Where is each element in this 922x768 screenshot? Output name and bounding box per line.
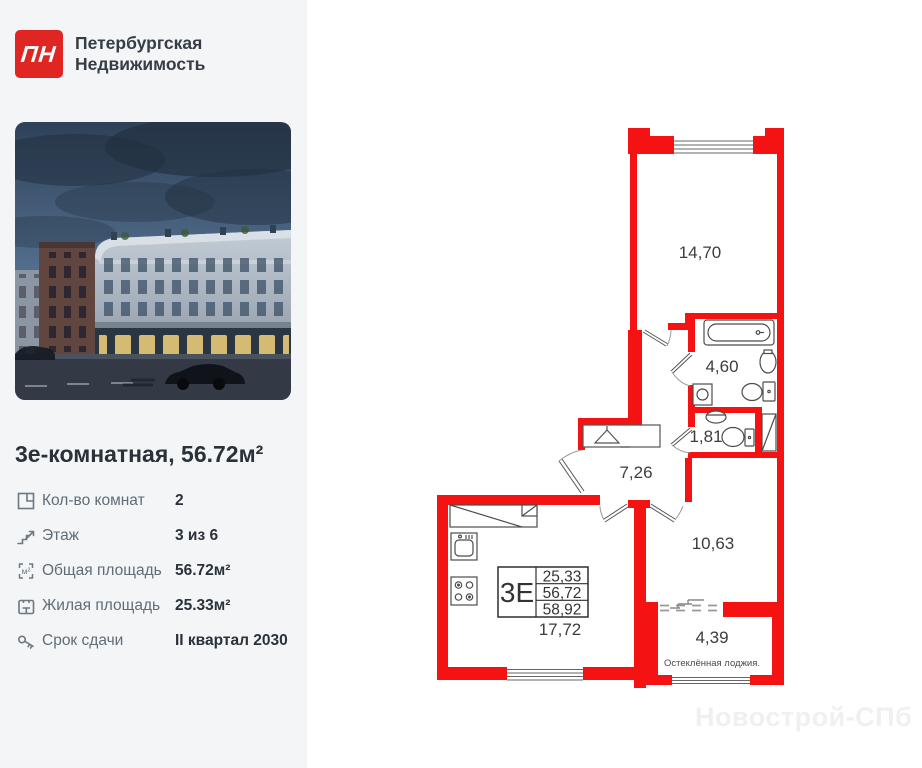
room-label-wc: 1,81 — [689, 427, 722, 446]
unit-living-area: 25,33 — [543, 569, 582, 586]
radiator-icon — [670, 600, 704, 608]
key-icon — [15, 630, 37, 652]
building-photo-art — [15, 122, 291, 400]
walls — [437, 128, 784, 688]
sidebar: ПН Петербургская Недвижимость — [0, 0, 307, 768]
rooms-icon — [15, 490, 37, 512]
watermark: Новострой-СПб — [695, 702, 920, 733]
detail-value: 56.72м² — [175, 562, 230, 580]
detail-label: Кол-во комнат — [42, 492, 145, 510]
kitchen-sink-icon — [451, 533, 477, 560]
brand-name: Петербургская Недвижимость — [75, 33, 205, 75]
room-label-hallway: 7,26 — [619, 463, 652, 482]
room-label-living-room: 14,70 — [679, 243, 722, 262]
bathtub-icon — [704, 320, 774, 345]
detail-row-rooms: Кол-во комнат 2 — [15, 490, 295, 512]
window-kitchen — [507, 670, 583, 681]
bed-icon — [450, 505, 537, 527]
shaft-icon — [762, 414, 776, 451]
detail-value: 3 из 6 — [175, 527, 218, 545]
detail-value: II квартал 2030 — [175, 632, 288, 650]
floor-plan: 14,70 4,60 1,81 7,26 10,63 17,72 4,39 Ос… — [430, 120, 922, 700]
unit-area-with-loggia: 58,92 — [543, 602, 582, 619]
loggia-dashes — [660, 606, 723, 611]
bath-sink-icon — [760, 350, 776, 373]
detail-label: Жилая площадь — [42, 597, 160, 615]
brand-line1: Петербургская — [75, 33, 205, 54]
detail-row-completion: Срок сдачи II квартал 2030 — [15, 630, 295, 652]
wc-toilet-icon — [722, 428, 754, 447]
room-label-bedroom: 10,63 — [692, 534, 735, 553]
loggia-note: Остеклённая лоджия. — [664, 658, 760, 669]
room-label-kitchen-living: 17,72 — [539, 620, 582, 639]
detail-value: 25.33м² — [175, 597, 230, 615]
window-loggia — [672, 678, 750, 684]
detail-label: Срок сдачи — [42, 632, 123, 650]
door-kitchen — [600, 504, 628, 522]
detail-row-living-area: Жилая площадь 25.33м² — [15, 595, 295, 617]
svg-text:м²: м² — [22, 566, 31, 576]
unit-type-label: 3Е — [500, 577, 534, 608]
door-bedroom — [650, 504, 683, 522]
page-title: 3е-комнатная, 56.72м² — [15, 441, 300, 468]
logo-mark: ПН — [15, 30, 63, 78]
brand-line2: Недвижимость — [75, 54, 205, 75]
detail-value: 2 — [175, 492, 184, 510]
total-area-icon: м² — [15, 560, 37, 582]
detail-row-floor: Этаж 3 из 6 — [15, 525, 295, 547]
logo-pn-text: ПН — [20, 41, 58, 68]
unit-table: 3Е 25,33 56,72 58,92 — [498, 567, 588, 619]
door-living-room — [643, 330, 671, 346]
stairs-icon — [15, 525, 37, 547]
building-photo — [15, 122, 291, 400]
door-bathroom — [671, 353, 692, 386]
detail-label: Этаж — [42, 527, 79, 545]
wardrobe-icon — [583, 425, 660, 447]
detail-list: Кол-во комнат 2 Этаж 3 из 6 м² Общая пло… — [15, 490, 295, 652]
room-label-loggia: 4,39 — [695, 628, 728, 647]
detail-label: Общая площадь — [42, 562, 162, 580]
door-entrance — [559, 450, 584, 493]
living-area-icon — [15, 595, 37, 617]
washing-machine-icon — [693, 384, 712, 405]
window-top — [672, 141, 753, 153]
stove-icon — [451, 577, 477, 605]
room-label-bathroom: 4,60 — [705, 357, 738, 376]
detail-row-total-area: м² Общая площадь 56.72м² — [15, 560, 295, 582]
unit-area-no-loggia: 56,72 — [543, 585, 582, 602]
bath-toilet-icon — [742, 382, 775, 401]
